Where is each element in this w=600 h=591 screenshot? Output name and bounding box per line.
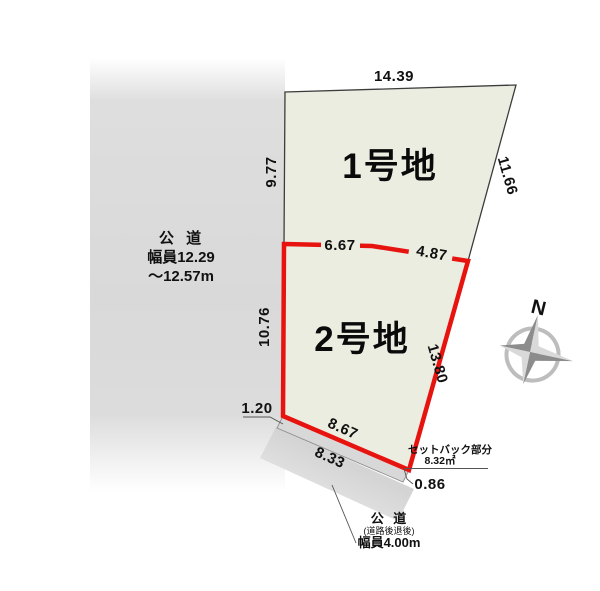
- setback-area: 8.32㎡: [425, 454, 456, 467]
- compass-north-label: N: [529, 296, 548, 321]
- plot-drawing: 1号地 14.39 9.77 11.66 2号地 6.67 4.87 10.76…: [0, 0, 600, 591]
- bottom-road-width: 幅員4.00m: [358, 535, 421, 550]
- lot2-dim-left: 10.76: [256, 307, 273, 347]
- land-plot-diagram: 1号地 14.39 9.77 11.66 2号地 6.67 4.87 10.76…: [0, 0, 600, 591]
- lot1-dim-top: 14.39: [374, 68, 414, 85]
- left-road-width2: ～12.57m: [148, 268, 214, 285]
- lot1-dim-right: 11.66: [494, 155, 521, 197]
- left-road-width1: 幅員12.29: [147, 248, 215, 266]
- lot2-label: 2号地: [314, 320, 409, 359]
- bottom-road-name: 公 道: [371, 511, 410, 526]
- lot2-dim-corner: 1.20: [241, 400, 272, 417]
- compass-rose-icon: [493, 308, 581, 393]
- lot1-label: 1号地: [342, 147, 437, 186]
- left-road-name: 公 道: [159, 229, 205, 247]
- lot2-dim-top-left: 6.67: [324, 237, 355, 254]
- lot1-dim-left: 9.77: [263, 156, 280, 187]
- setback-dim-right: 0.86: [414, 476, 445, 493]
